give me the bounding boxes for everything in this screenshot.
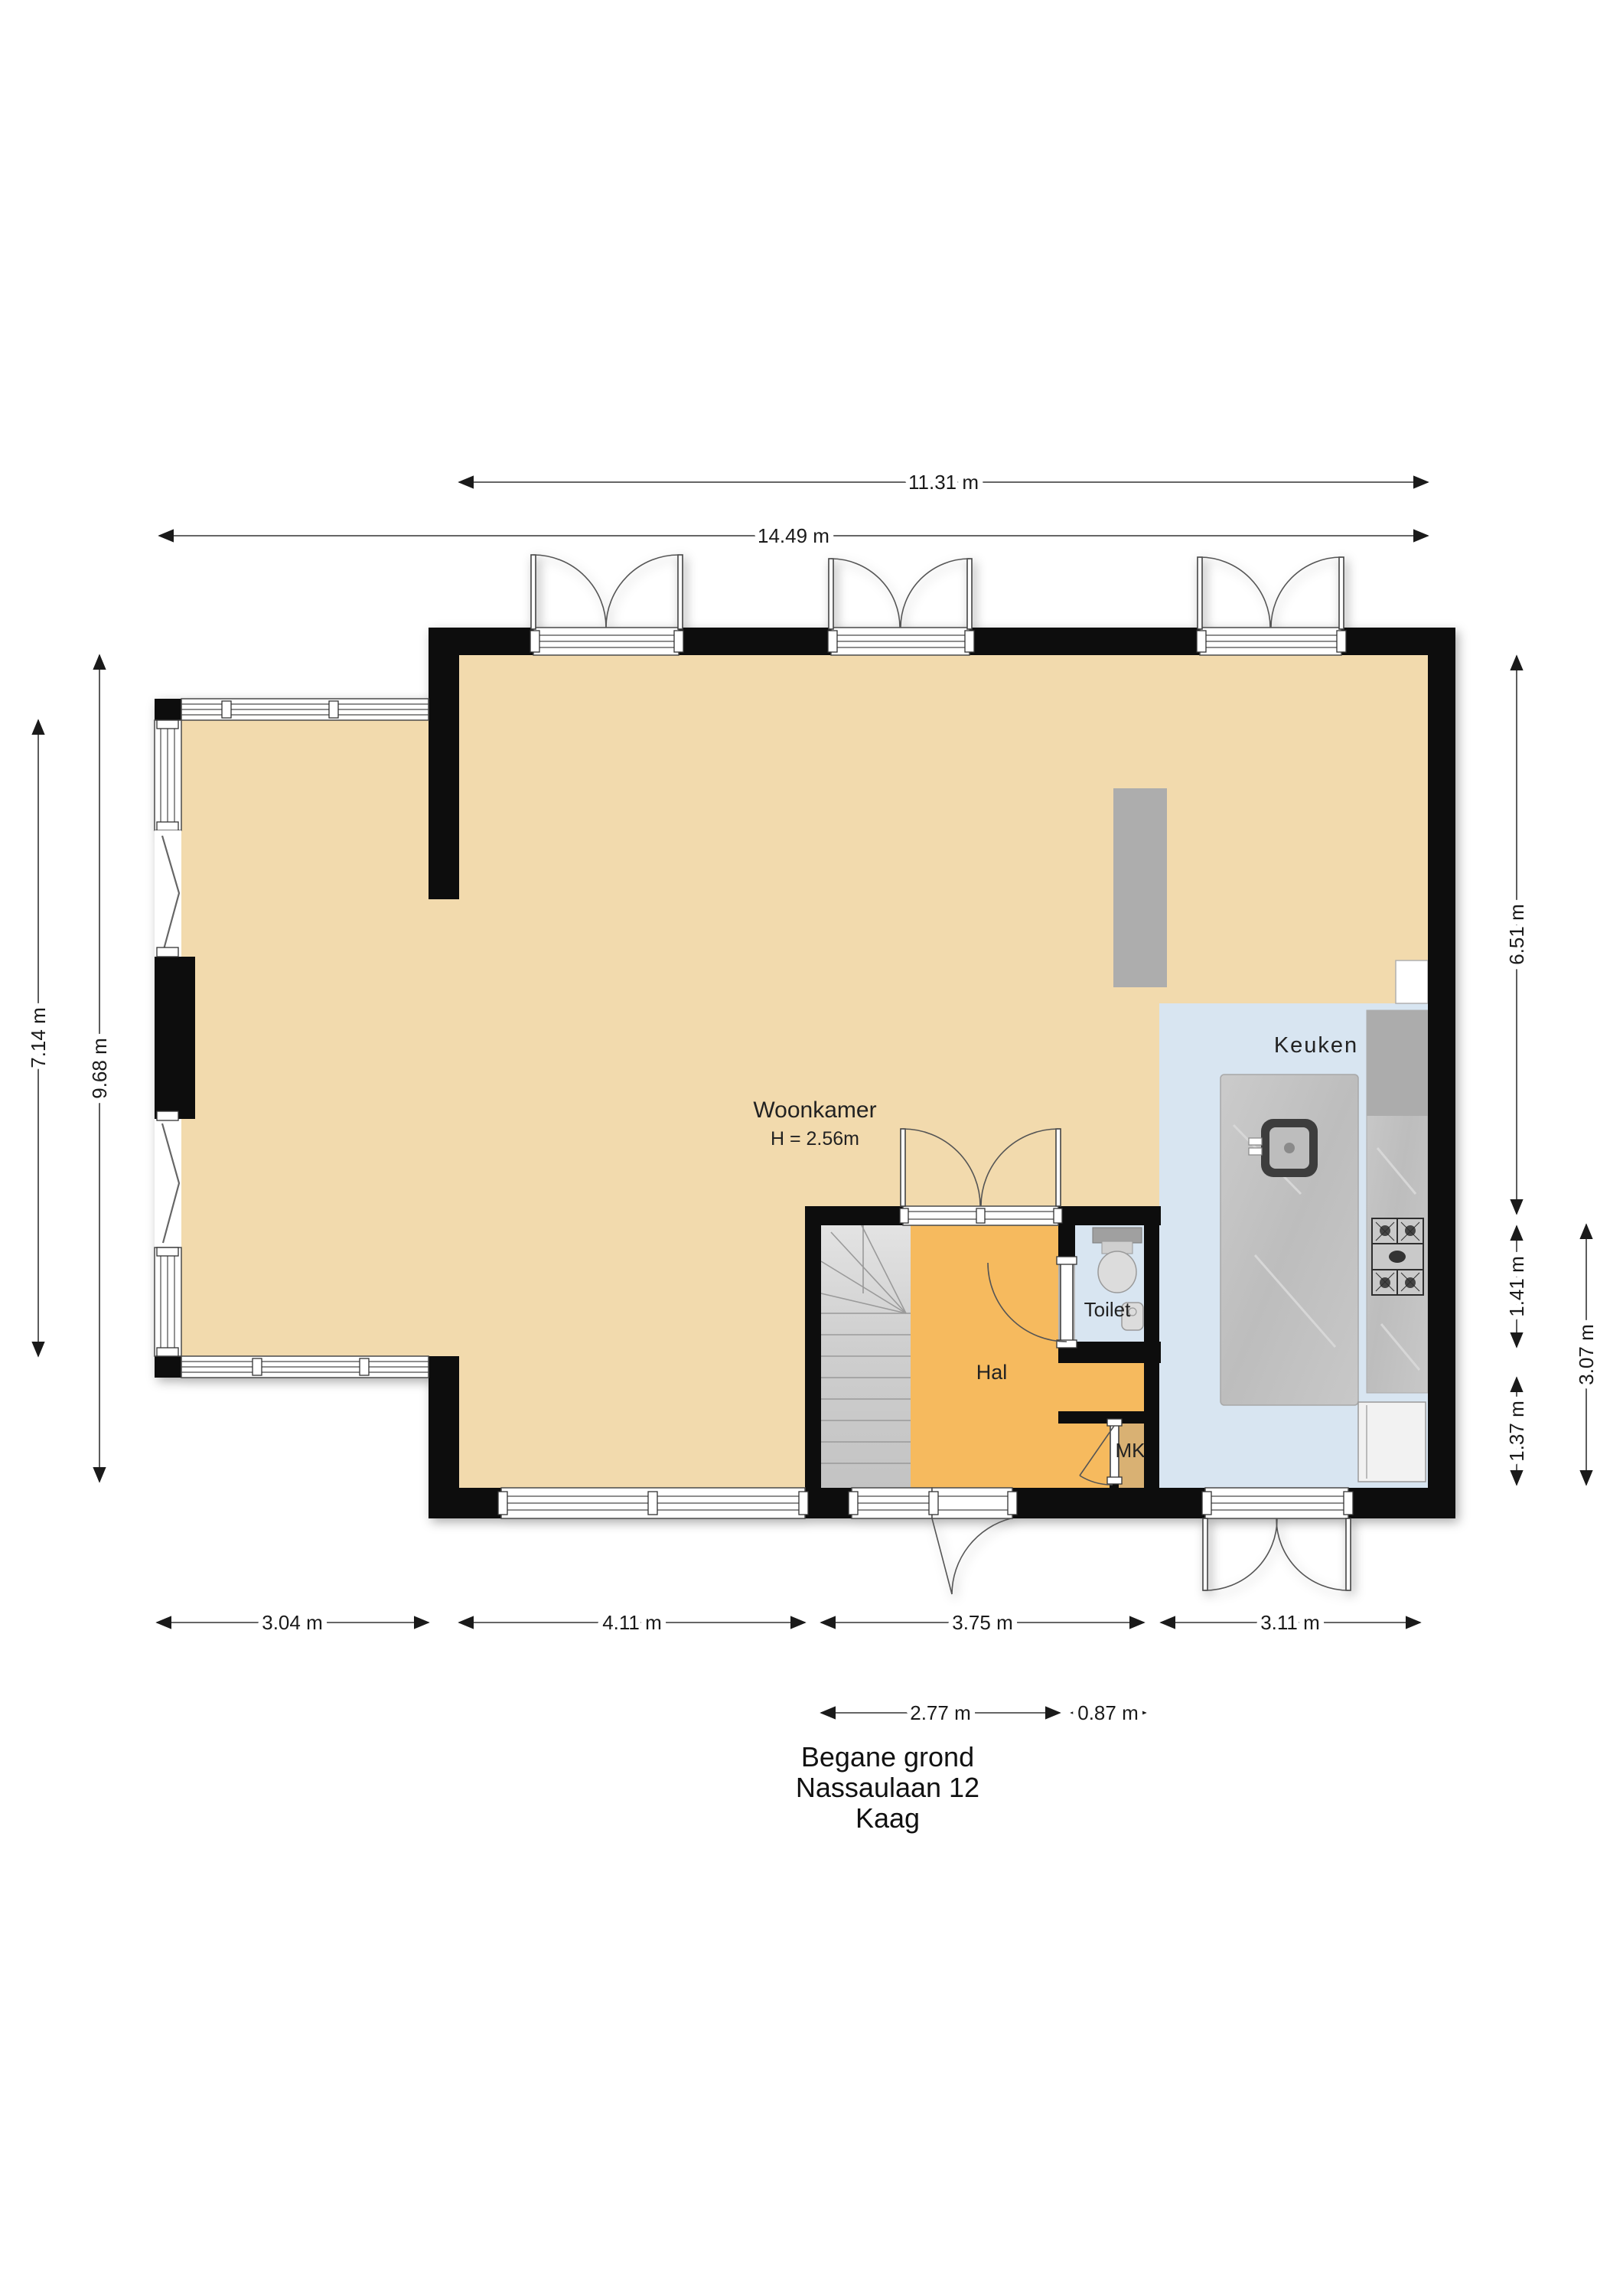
wall-niche bbox=[1396, 960, 1428, 1003]
dim-right-6-51: 6.51 m bbox=[1505, 904, 1528, 965]
woonkamer-label: Woonkamer bbox=[753, 1097, 876, 1123]
floor-plan bbox=[155, 555, 1455, 1594]
keuken-label: Keuken bbox=[1274, 1033, 1358, 1058]
floorplan-page: Woonkamer H = 2.56m Keuken Hal Toilet MK… bbox=[0, 0, 1623, 2296]
dim-right-1-41: 1.41 m bbox=[1505, 1256, 1528, 1317]
dim-bottom-2-77: 2.77 m bbox=[910, 1701, 971, 1724]
dim-right-3-07: 3.07 m bbox=[1575, 1324, 1598, 1385]
sunroom-window-top bbox=[181, 699, 429, 720]
dim-bottom-4-11: 4.11 m bbox=[602, 1611, 662, 1634]
french-door-top-3 bbox=[1197, 557, 1346, 655]
dim-top-11-31: 11.31 m bbox=[908, 471, 979, 494]
sunroom-fold-door-2 bbox=[155, 1119, 181, 1247]
title-floor: Begane grond bbox=[801, 1741, 974, 1773]
faucet bbox=[1249, 1138, 1262, 1145]
dim-top-14-49: 14.49 m bbox=[758, 524, 829, 547]
sunroom-window-left-2 bbox=[155, 1247, 181, 1356]
kitchen-double-door bbox=[1202, 1488, 1353, 1590]
hal-label: Hal bbox=[976, 1361, 1008, 1384]
dim-right-1-37: 1.37 m bbox=[1505, 1401, 1528, 1462]
dim-left-7-14: 7.14 m bbox=[27, 1007, 50, 1068]
sunroom-window-bottom bbox=[181, 1356, 429, 1378]
window-bottom-long bbox=[498, 1488, 808, 1518]
title-city: Kaag bbox=[855, 1802, 920, 1834]
sink-drain bbox=[1284, 1143, 1295, 1153]
title-block: Begane grond Nassaulaan 12 Kaag bbox=[796, 1741, 979, 1834]
mk-label: MK bbox=[1116, 1439, 1146, 1462]
dim-bottom-3-04: 3.04 m bbox=[262, 1611, 323, 1634]
dim-bottom-0-87: 0.87 m bbox=[1077, 1701, 1139, 1724]
wc-tank bbox=[1093, 1228, 1142, 1243]
woonkamer-height-note: H = 2.56m bbox=[771, 1128, 859, 1150]
french-door-top-1 bbox=[530, 555, 683, 655]
faucet bbox=[1249, 1148, 1262, 1155]
dim-left-9-68: 9.68 m bbox=[88, 1038, 111, 1099]
post bbox=[157, 947, 178, 957]
dim-bottom-3-11: 3.11 m bbox=[1260, 1611, 1320, 1634]
sunroom-fold-door-1 bbox=[155, 830, 181, 957]
wc-bowl bbox=[1098, 1251, 1136, 1293]
toilet-label: Toilet bbox=[1084, 1298, 1131, 1321]
title-address: Nassaulaan 12 bbox=[796, 1772, 979, 1803]
front-door bbox=[929, 1488, 1017, 1594]
post bbox=[157, 1111, 178, 1120]
dim-bottom-3-75: 3.75 m bbox=[952, 1611, 1013, 1634]
sunroom-window-left-1 bbox=[155, 720, 181, 830]
counter-upper-cabinet bbox=[1367, 1010, 1428, 1116]
french-door-top-2 bbox=[828, 559, 974, 655]
floorplan-canvas: Woonkamer H = 2.56m Keuken Hal Toilet MK… bbox=[0, 0, 1623, 2296]
closet-block bbox=[1113, 788, 1167, 987]
kitchen-appliance bbox=[1358, 1402, 1426, 1482]
window-bottom-hall bbox=[849, 1488, 932, 1518]
stove bbox=[1372, 1218, 1423, 1295]
